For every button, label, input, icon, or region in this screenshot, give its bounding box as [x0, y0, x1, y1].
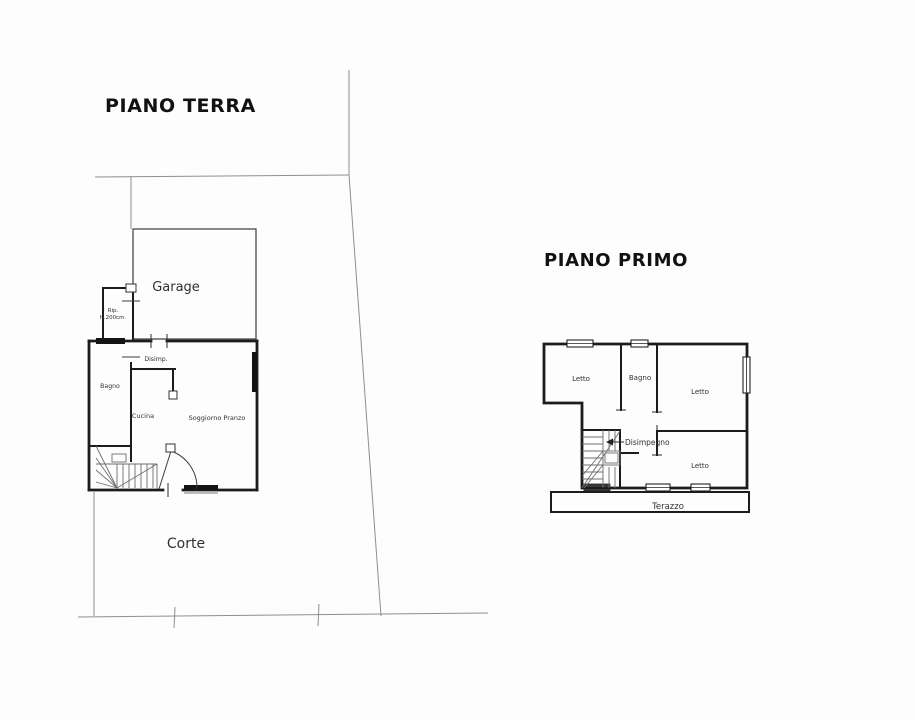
room-label-cucina: Cucina	[132, 412, 154, 420]
first-floor-windows	[567, 340, 750, 491]
floor-plan-page: PIANO TERRA Garage Rip. H.200cm. Disimp.…	[0, 0, 915, 720]
first-floor-outer-walls	[544, 344, 747, 488]
entrance-door-arc	[159, 444, 197, 489]
floor-plan-drawing: PIANO TERRA Garage Rip. H.200cm. Disimp.…	[0, 0, 915, 720]
terrace-outline	[551, 492, 749, 512]
house-interior-walls	[89, 357, 177, 461]
room-label-corte: Corte	[167, 536, 205, 552]
room-label-disimpegno: Disimpegno	[625, 438, 670, 447]
window-east	[252, 352, 257, 392]
room-label-rip-height: H.200cm.	[100, 315, 127, 321]
room-label-rip: Rip.	[108, 308, 119, 314]
first-floor-title: PIANO PRIMO	[544, 250, 688, 271]
room-label-letto-ne: Letto	[691, 388, 709, 396]
room-label-disimp: Disimp.	[144, 356, 167, 363]
room-label-bagno-ff: Bagno	[629, 374, 651, 382]
first-floor-plan: PIANO PRIMO Letto Bagno Letto Disimpegno…	[544, 250, 750, 512]
stairs-ground-floor	[96, 446, 157, 489]
ground-floor-title: PIANO TERRA	[105, 95, 256, 117]
window-south	[184, 485, 218, 490]
room-label-letto-nw: Letto	[572, 375, 590, 383]
room-label-soggiorno: Soggiorno Pranzo	[189, 414, 246, 422]
ground-floor-plan: PIANO TERRA Garage Rip. H.200cm. Disimp.…	[78, 70, 488, 628]
stairs-first-floor	[582, 430, 620, 488]
room-label-garage: Garage	[152, 280, 200, 295]
room-label-bagno-gf: Bagno	[100, 383, 120, 390]
door-leaf-mark	[126, 284, 136, 292]
room-label-letto-se: Letto	[691, 462, 709, 470]
property-boundary-lines	[78, 70, 488, 628]
room-label-terazzo: Terazzo	[651, 502, 684, 512]
window-north	[96, 338, 125, 344]
